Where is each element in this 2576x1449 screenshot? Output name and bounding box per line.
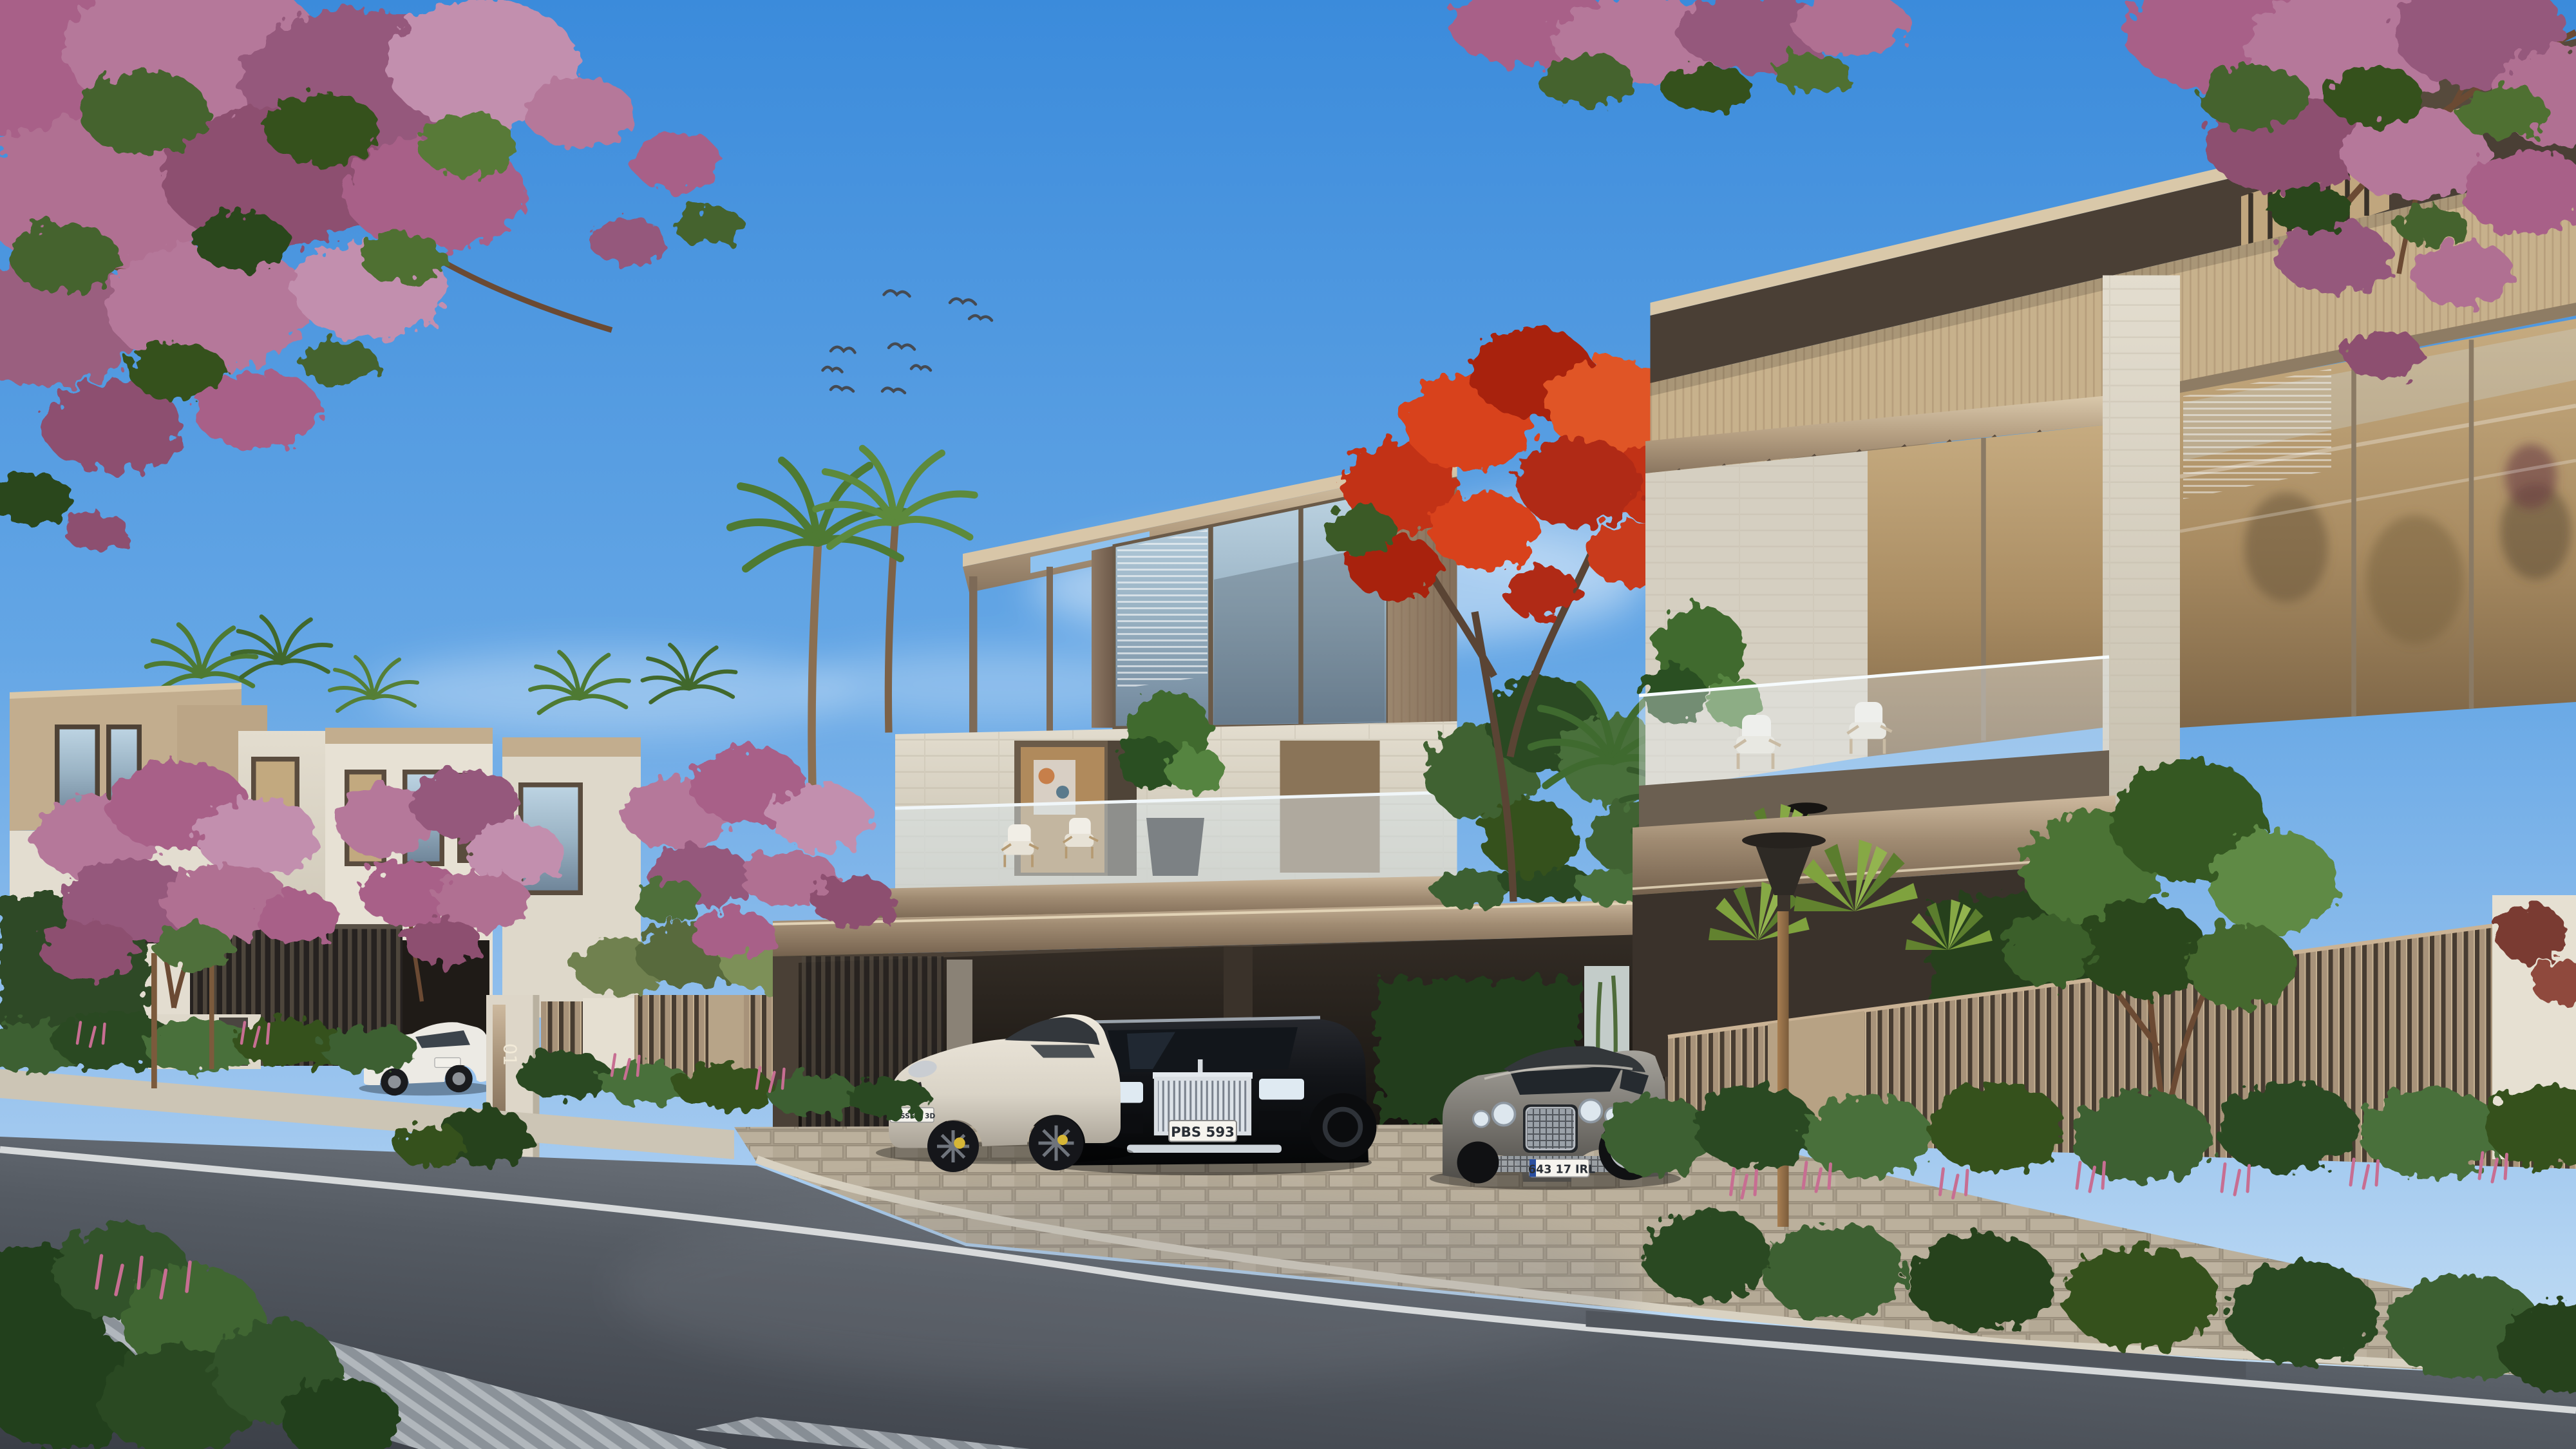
bentley-headlight (1493, 1103, 1515, 1126)
lamp-neck (1777, 895, 1790, 911)
bentley-headlight-2 (1580, 1100, 1602, 1122)
bentley-grille (1526, 1108, 1575, 1150)
audi-rim (388, 1075, 401, 1088)
lamp-post (1777, 911, 1789, 1227)
artwork-detail-2 (1056, 786, 1069, 799)
pillar-texture (2103, 276, 2180, 809)
upper-wood-pier (1092, 546, 1114, 728)
bentley-plate-text: 643 17 IRL (1528, 1163, 1595, 1176)
scene-canvas: 01 01 (0, 0, 2576, 1449)
hood-ornament (1198, 1059, 1203, 1072)
bentley-headlight-outer (1473, 1111, 1490, 1127)
lamp-post-left (151, 953, 157, 1088)
rolls-intake-2 (1259, 1111, 1301, 1130)
rolls-wheel (1309, 1094, 1377, 1161)
porsche-brake-caliper-2 (1057, 1135, 1068, 1145)
lamp-post-left-2 (209, 963, 214, 1069)
right-balcony (1639, 425, 2109, 860)
road-light-patch (612, 1191, 1642, 1385)
porsche-brake-caliper (954, 1137, 965, 1149)
bentley-wheel-2 (1457, 1142, 1499, 1184)
window-blinds (1117, 530, 1207, 690)
gate-number-near: 01 (500, 1043, 520, 1066)
lamp-disc (1742, 833, 1826, 849)
rolls-headlight-2 (1259, 1079, 1304, 1100)
rolls-bumper-chrome (1127, 1145, 1282, 1153)
rolls-plate-text: PBS 593 (1171, 1124, 1235, 1141)
audi-rim-2 (453, 1072, 466, 1085)
villa-street-render: 01 01 (0, 0, 2576, 1449)
artwork-detail (1039, 768, 1055, 784)
